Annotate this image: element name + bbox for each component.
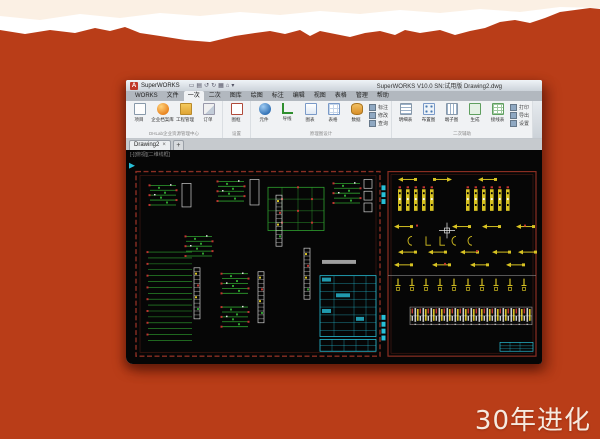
file-tab-drawing2[interactable]: Drawing2 × (129, 140, 171, 150)
ribbon-button[interactable]: 工程管理 (175, 103, 196, 123)
quick-access-icon[interactable]: ▭ (189, 83, 195, 89)
close-tab-icon[interactable]: × (162, 141, 166, 150)
ribbon-button-icon (492, 103, 504, 115)
quick-access-icon[interactable]: ▦ (218, 83, 224, 89)
ribbon-mini-icon (510, 120, 517, 127)
cad-application-window: A SuperWORKS ▭▤↺↻▦⌂▾ SuperWORKS V10.0 SN… (126, 80, 542, 364)
ribbon-tab-bar: WORKS文件一次二次图库绘图标注编辑视图表格管理帮助 (126, 91, 542, 101)
left-sheet (136, 172, 380, 357)
ribbon-button[interactable]: 布置图 (418, 103, 439, 123)
app-logo-icon[interactable]: A (130, 82, 138, 90)
ribbon-mini-icon (369, 104, 376, 111)
ribbon-mini-button[interactable]: 查询 (369, 120, 388, 127)
ribbon-tab[interactable]: 帮助 (373, 91, 393, 101)
cyan-tick-marks (382, 185, 386, 340)
quick-access-icon[interactable]: ↻ (211, 83, 216, 89)
ribbon-button-icon (400, 103, 412, 115)
ucs-icon (129, 163, 135, 169)
ribbon-button-icon (231, 103, 243, 115)
crosshair-cursor (439, 223, 455, 239)
quick-access-icon[interactable]: ↺ (204, 83, 209, 89)
right-sheet (388, 172, 537, 357)
new-tab-button[interactable]: + (173, 140, 184, 150)
ribbon-button-icon (180, 103, 192, 115)
title-bar: A SuperWORKS ▭▤↺↻▦⌂▾ SuperWORKS V10.0 SN… (126, 80, 542, 91)
ribbon-tab[interactable]: 视图 (310, 91, 330, 101)
viewport-controls-label[interactable]: [-][俯视][二维线框] (130, 151, 170, 158)
title-block (500, 342, 533, 351)
quick-access-icon[interactable]: ▾ (231, 83, 234, 89)
drawing-canvas-graphics (126, 150, 542, 364)
ribbon-button-icon (351, 103, 363, 115)
ribbon-group-resource-center: 项目 企业档案库 工程管理 (126, 101, 223, 138)
presentation-slide: A SuperWORKS ▭▤↺↻▦⌂▾ SuperWORKS V10.0 SN… (0, 0, 600, 439)
ribbon-button-icon (328, 103, 340, 115)
ribbon-tab[interactable]: 编辑 (289, 91, 309, 101)
ribbon-group-label: 二次辅助 (402, 129, 523, 137)
ribbon-mini-button[interactable]: 修改 (369, 112, 388, 119)
ribbon-button[interactable]: 企业档案库 (152, 103, 173, 123)
ribbon-group-secondary-aux: 明细表 布置图 端子图 (392, 101, 533, 138)
ribbon-tab[interactable]: 管理 (352, 91, 372, 101)
ribbon-tab[interactable]: 文件 (163, 91, 183, 101)
cyan-table (320, 276, 376, 352)
ribbon-button-icon (134, 103, 146, 115)
ribbon-tab[interactable]: WORKS (131, 91, 162, 101)
ribbon-tab[interactable]: 绘图 (247, 91, 267, 101)
file-tab-bar: Drawing2 × + (126, 139, 542, 150)
quick-access-toolbar: ▭▤↺↻▦⌂▾ (189, 83, 235, 89)
ribbon-button[interactable]: 表格 (323, 103, 344, 123)
ribbon-button-icon (469, 103, 481, 115)
ribbon-button[interactable]: 明细表 (395, 103, 416, 123)
ribbon-button-icon (305, 103, 317, 115)
ribbon-button[interactable]: 图表 (300, 103, 321, 123)
ribbon-button-icon (423, 103, 435, 115)
ribbon-mini-button[interactable]: 标注 (369, 104, 388, 111)
ribbon-group-label: 原理图设计 (261, 129, 382, 137)
ribbon-button[interactable]: 导线 (277, 103, 298, 123)
ribbon-tab[interactable]: 标注 (268, 91, 288, 101)
ribbon-mini-icon (510, 104, 517, 111)
slide-caption: 30年进化 (475, 400, 591, 437)
ribbon-button[interactable]: 数据 (346, 103, 367, 123)
ribbon-button[interactable]: 图框 (226, 103, 247, 123)
ribbon-button[interactable]: 生成 (464, 103, 485, 123)
ribbon-mini-button[interactable]: 设置 (510, 120, 529, 127)
quick-access-icon[interactable]: ▤ (196, 83, 202, 89)
ribbon-button-icon (259, 103, 271, 115)
app-name: SuperWORKS (141, 83, 180, 89)
ribbon-mini-icon (510, 112, 517, 119)
ribbon-button-icon (157, 103, 169, 115)
ribbon-tab[interactable]: 一次 (184, 91, 204, 101)
ribbon: 项目 企业档案库 工程管理 (126, 101, 542, 139)
ribbon-button-icon (203, 103, 215, 115)
ribbon-button-icon (446, 103, 458, 115)
ribbon-mini-button[interactable]: 打印 (510, 104, 529, 111)
ribbon-mini-button[interactable]: 导出 (510, 112, 529, 119)
ribbon-button[interactable]: 端子图 (441, 103, 462, 123)
ribbon-button-icon (282, 103, 293, 114)
ribbon-tab[interactable]: 二次 (205, 91, 225, 101)
ribbon-group-label: DHLab企业资源管理中心 (134, 129, 215, 137)
quick-access-icon[interactable]: ⌂ (226, 83, 230, 89)
ribbon-button[interactable]: 订单 (198, 103, 219, 123)
ribbon-group-settings: 图框 设置 (223, 101, 251, 138)
ribbon-button[interactable]: 元件 (254, 103, 275, 123)
ribbon-group-schematic-design: 元件 导线 图表 (251, 101, 392, 138)
torn-paper-edge (0, 0, 600, 60)
ribbon-button[interactable]: 项目 (129, 103, 150, 123)
ribbon-mini-icon (369, 120, 376, 127)
ribbon-group-label: 设置 (227, 129, 246, 137)
ribbon-button[interactable]: 接线表 (487, 103, 508, 123)
ribbon-tab[interactable]: 图库 (226, 91, 246, 101)
drawing-canvas[interactable]: [-][俯视][二维线框] (126, 150, 542, 364)
document-title: SuperWORKS V10.0 SN:试用版 Drawing2.dwg (377, 81, 502, 90)
ribbon-tab[interactable]: 表格 (331, 91, 351, 101)
ribbon-mini-icon (369, 112, 376, 119)
ribbon-empty-area (533, 101, 542, 138)
